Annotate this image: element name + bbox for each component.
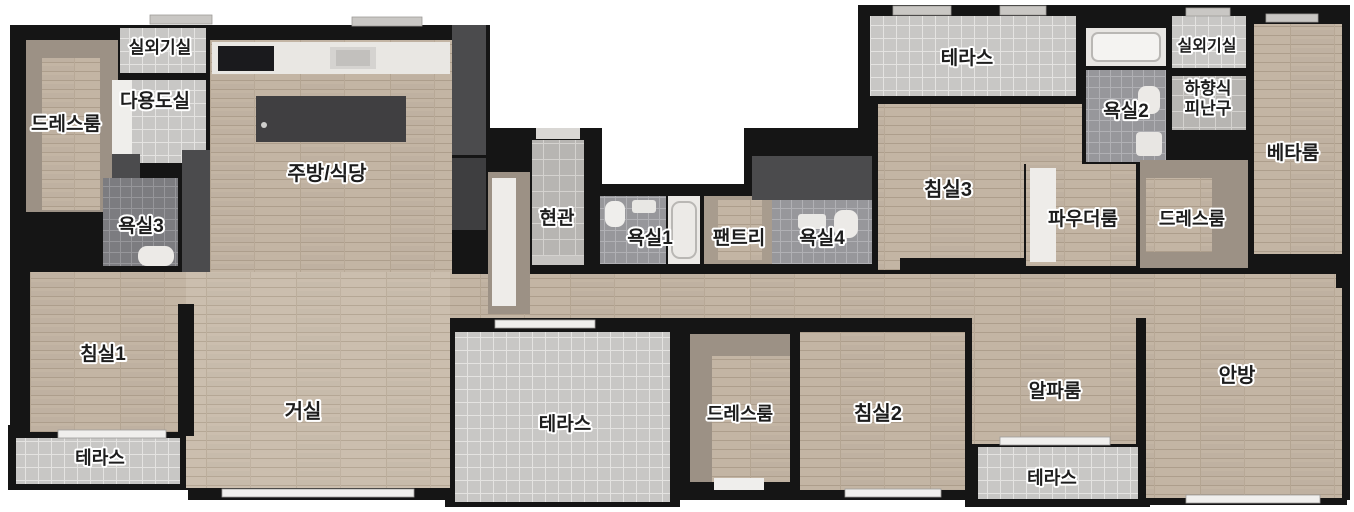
label-bedroom1: 침실1 [80, 343, 126, 365]
fridge-block [182, 150, 212, 272]
label-bedroom3: 침실3 [924, 178, 972, 201]
entry-door-tab [536, 128, 580, 139]
label-escape-hatch-line2: 피난구 [1185, 99, 1232, 118]
label-alpha-room: 알파룸 [1029, 380, 1081, 402]
island-stool-icon [261, 122, 267, 128]
label-entrance: 현관 [540, 207, 575, 229]
wall-bedroom1-living [178, 304, 194, 436]
bathroom2-sink-icon [1136, 132, 1162, 156]
door-tab-beta-room [1266, 14, 1318, 22]
label-terrace-top: 테라스 [941, 47, 993, 69]
door-tab-outdoor-right [1186, 8, 1230, 16]
label-master-bedroom: 안방 [1219, 364, 1256, 387]
label-outdoor-unit-left: 실외기실 [129, 38, 192, 57]
window-bedroom1-terrace [58, 430, 166, 438]
window-bedroom2 [845, 489, 941, 497]
label-bathroom2: 욕실2 [1103, 100, 1149, 122]
floor-kitchen [210, 40, 452, 282]
bathroom3-toilet-icon [138, 246, 174, 266]
door-tab-kitchen-top [352, 17, 422, 26]
window-terrace-center-top [495, 320, 595, 328]
label-terrace-bottom-right: 테라스 [1027, 468, 1077, 488]
bathroom2-tub-inner [1092, 33, 1160, 61]
column-dark-lower [452, 158, 486, 230]
floor-living-room [186, 272, 450, 488]
label-beta-room: 베타룸 [1267, 142, 1319, 164]
label-dressroom-center: 드레스룸 [707, 404, 773, 424]
label-outdoor-unit-right: 실외기실 [1178, 37, 1237, 55]
dressroom-center-door [714, 478, 764, 490]
column-dark-upper [452, 25, 486, 155]
label-pantry: 팬트리 [713, 227, 765, 249]
kitchen-island [256, 96, 406, 142]
label-terrace-center: 테라스 [539, 413, 591, 435]
floor-beta-room [1254, 24, 1342, 254]
bathroom4-sink-icon [798, 214, 826, 229]
bathroom1-toilet-icon [605, 201, 625, 227]
storage-dark-block [752, 156, 872, 200]
floor-entrance [532, 140, 584, 256]
label-living-room: 거실 [285, 400, 322, 423]
utility-dark-cabinet [112, 154, 140, 180]
window-alpha-terrace [1000, 437, 1110, 445]
label-bathroom4: 욕실4 [799, 227, 845, 249]
sink-basin [336, 50, 370, 66]
door-tab-terrace-top-1 [893, 6, 951, 15]
window-living-room [222, 489, 414, 497]
label-bedroom2: 침실2 [854, 402, 902, 425]
bathroom1-sink-icon [632, 200, 656, 213]
label-kitchen-dining: 주방/식당 [287, 162, 367, 185]
floor-plan-drawing: 실외기실 드레스룸 다용도실 욕실3 주방/식당 현관 욕실1 팬트리 욕실4 … [0, 0, 1354, 512]
window-master-bedroom [1186, 495, 1320, 503]
cooktop-icon [218, 46, 274, 71]
label-bathroom3: 욕실3 [118, 215, 164, 237]
floor-bedroom3 [878, 160, 1024, 270]
floor-bedroom3-upper [878, 104, 1082, 164]
label-terrace-bottom-left: 테라스 [75, 448, 125, 468]
wall-bedroom3-bottom [900, 258, 1024, 272]
label-bathroom1: 욕실1 [627, 227, 673, 249]
door-tab-terrace-top-2 [1000, 6, 1046, 15]
label-escape-hatch-line1: 하향식 [1185, 78, 1232, 98]
label-powder-room: 파우더룸 [1048, 208, 1118, 230]
label-dressroom-right: 드레스룸 [1159, 209, 1225, 229]
door-tab-outdoor-left [150, 15, 212, 24]
entry-threshold [532, 256, 584, 265]
label-utility-room: 다용도실 [120, 90, 190, 112]
entry-closet-inner [492, 178, 516, 306]
floor-master-bedroom [1146, 288, 1342, 498]
floor-plan: 실외기실 드레스룸 다용도실 욕실3 주방/식당 현관 욕실1 팬트리 욕실4 … [0, 0, 1354, 512]
label-dressroom-left: 드레스룸 [31, 113, 101, 135]
